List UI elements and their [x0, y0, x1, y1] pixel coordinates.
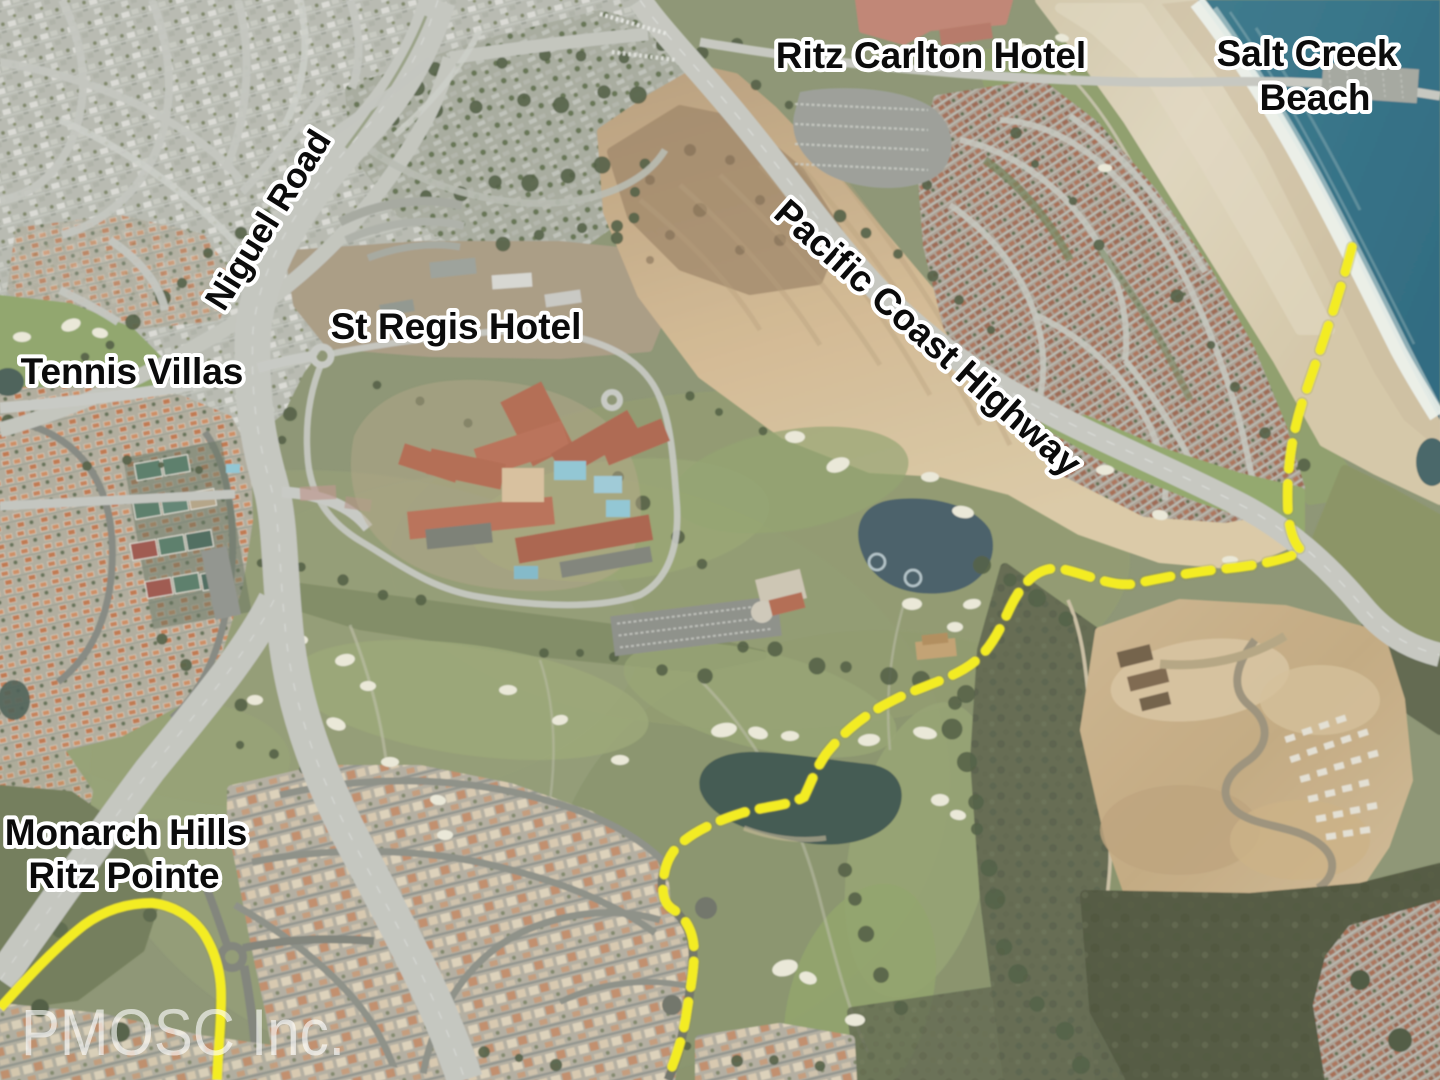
svg-text:Salt Creek: Salt Creek [1217, 33, 1398, 74]
svg-text:Ritz Pointe: Ritz Pointe [28, 855, 219, 896]
svg-text:Tennis Villas: Tennis Villas [21, 351, 244, 392]
svg-text:Monarch Hills: Monarch Hills [5, 812, 248, 853]
svg-text:Ritz Carlton Hotel: Ritz Carlton Hotel [776, 35, 1086, 76]
svg-text:Beach: Beach [1259, 77, 1370, 118]
svg-text:St Regis Hotel: St Regis Hotel [331, 306, 582, 347]
svg-text:PMOSC Inc.: PMOSC Inc. [21, 995, 345, 1069]
